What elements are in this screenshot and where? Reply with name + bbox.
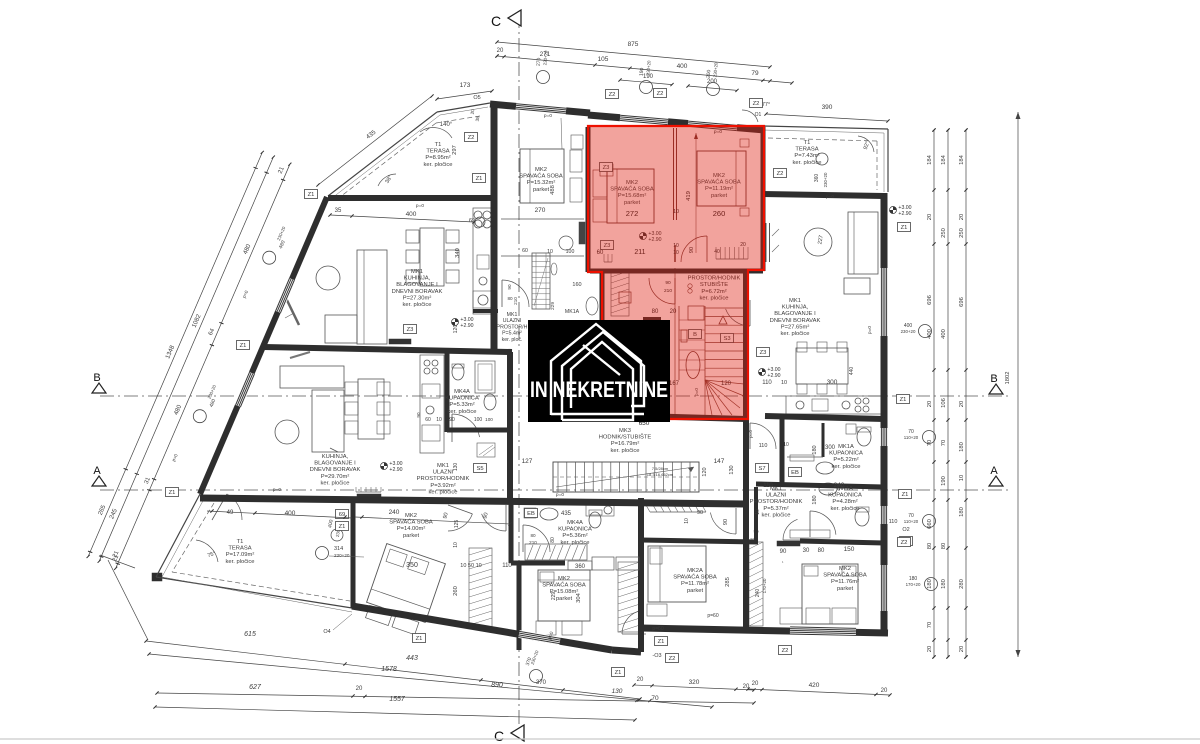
svg-text:420: 420 <box>809 682 820 689</box>
svg-text:615: 615 <box>244 631 256 638</box>
svg-text:ker. pločice: ker. pločice <box>793 160 822 166</box>
svg-text:Z2: Z2 <box>753 101 760 107</box>
svg-text:T1: T1 <box>804 140 811 146</box>
svg-text:80: 80 <box>818 548 825 554</box>
svg-text:P=15.32m²: P=15.32m² <box>527 180 556 186</box>
svg-text:P=27.65m²: P=27.65m² <box>781 324 810 330</box>
svg-text:P=11.78m²: P=11.78m² <box>681 581 709 587</box>
svg-text:EB: EB <box>527 511 535 517</box>
svg-text:320: 320 <box>689 679 700 686</box>
svg-text:110: 110 <box>502 563 512 569</box>
svg-text:20: 20 <box>881 688 888 694</box>
svg-text:p=0: p=0 <box>416 203 424 209</box>
svg-text:S5: S5 <box>476 466 483 472</box>
svg-text:Z1: Z1 <box>169 490 176 496</box>
svg-text:Z1: Z1 <box>339 524 346 530</box>
svg-text:Z2: Z2 <box>901 540 908 546</box>
svg-text:Z2: Z2 <box>609 92 616 98</box>
svg-text:MK1: MK1 <box>507 312 518 318</box>
svg-text:Z2: Z2 <box>777 171 784 177</box>
svg-text:435: 435 <box>561 511 572 517</box>
svg-text:ULAZNI: ULAZNI <box>503 318 521 324</box>
svg-text:350: 350 <box>406 562 418 569</box>
svg-text:696: 696 <box>927 295 933 305</box>
svg-text:18.3 16.662cm: 18.3 16.662cm <box>647 472 674 477</box>
svg-text:KUHINJA,: KUHINJA, <box>404 276 431 282</box>
svg-text:100: 100 <box>485 417 493 422</box>
svg-text:230+20: 230+20 <box>901 329 916 334</box>
svg-text:B: B <box>990 373 997 385</box>
svg-text:400: 400 <box>677 63 688 70</box>
svg-text:240: 240 <box>755 589 761 598</box>
svg-text:173: 173 <box>460 82 471 89</box>
svg-text:Z1: Z1 <box>901 225 908 231</box>
svg-text:90: 90 <box>416 412 421 418</box>
svg-text:60: 60 <box>425 417 431 423</box>
svg-text:p=60: p=60 <box>652 626 663 632</box>
svg-text:MK2: MK2 <box>405 513 417 519</box>
svg-text:230+20: 230+20 <box>334 553 350 558</box>
svg-text:O2: O2 <box>902 527 909 533</box>
svg-text:110: 110 <box>759 443 768 449</box>
svg-text:ULAZNI: ULAZNI <box>433 470 454 476</box>
svg-text:200: 200 <box>706 69 713 78</box>
svg-text:P=5.4m²: P=5.4m² <box>502 331 522 337</box>
svg-text:20: 20 <box>752 681 759 687</box>
svg-text:180: 180 <box>959 442 965 452</box>
svg-text:110+20: 110+20 <box>904 519 919 524</box>
svg-text:MK4A: MK4A <box>567 520 583 526</box>
svg-text:1802: 1802 <box>1005 372 1011 385</box>
svg-text:69: 69 <box>469 218 475 224</box>
svg-text:p=0: p=0 <box>867 326 873 334</box>
svg-text:10: 10 <box>959 475 965 481</box>
svg-text:230+20: 230+20 <box>823 172 828 187</box>
svg-text:p=0: p=0 <box>556 492 564 498</box>
svg-text:30: 30 <box>803 548 810 554</box>
svg-text:MK2: MK2 <box>839 566 851 572</box>
svg-text:400: 400 <box>927 329 933 339</box>
svg-text:10: 10 <box>755 509 761 515</box>
svg-text:184: 184 <box>927 154 933 164</box>
svg-text:Z3: Z3 <box>407 327 414 333</box>
svg-text:488: 488 <box>550 185 556 195</box>
svg-text:90: 90 <box>449 417 455 423</box>
svg-text:P=14.00m²: P=14.00m² <box>397 526 426 532</box>
svg-text:400: 400 <box>406 211 417 218</box>
svg-text:PROSTOR/HODNIK: PROSTOR/HODNIK <box>750 499 803 505</box>
svg-text:MK1: MK1 <box>770 486 782 492</box>
svg-text:70: 70 <box>651 695 659 702</box>
svg-text:127: 127 <box>522 458 533 465</box>
svg-text:10: 10 <box>684 518 690 524</box>
svg-text:210: 210 <box>513 297 518 305</box>
svg-text:10: 10 <box>547 249 553 255</box>
svg-text:7.5/28cm: 7.5/28cm <box>652 466 669 471</box>
svg-text:184: 184 <box>941 154 947 164</box>
svg-text:Z3: Z3 <box>760 350 767 356</box>
svg-text:184: 184 <box>959 154 965 164</box>
svg-text:Z1: Z1 <box>240 343 247 349</box>
svg-text:ker. pločice: ker. pločice <box>429 489 458 495</box>
svg-text:106: 106 <box>941 398 947 408</box>
svg-text:Z1: Z1 <box>308 192 315 198</box>
svg-text:MK2: MK2 <box>535 167 547 173</box>
svg-text:ker. pločice: ker. pločice <box>561 540 590 546</box>
svg-text:130: 130 <box>453 463 459 472</box>
svg-text:ker. pločice: ker. pločice <box>424 162 453 168</box>
svg-text:Z1: Z1 <box>658 639 665 645</box>
svg-text:20: 20 <box>927 646 933 652</box>
svg-text:S7: S7 <box>758 466 765 472</box>
svg-text:MK1A: MK1A <box>838 444 854 450</box>
svg-text:20: 20 <box>497 48 504 54</box>
svg-text:370: 370 <box>536 680 547 686</box>
svg-text:390: 390 <box>822 104 833 111</box>
svg-text:77°: 77° <box>762 102 770 108</box>
svg-text:270: 270 <box>536 57 543 66</box>
svg-text:SPAVAĆA SOBA: SPAVAĆA SOBA <box>389 519 433 526</box>
svg-text:90: 90 <box>697 510 703 516</box>
svg-text:240: 240 <box>389 509 400 516</box>
svg-text:MK1: MK1 <box>411 269 423 275</box>
svg-text:ker. pločice: ker. pločice <box>448 409 477 415</box>
svg-text:20: 20 <box>470 109 475 115</box>
svg-text:ker. ploč.: ker. ploč. <box>502 337 523 343</box>
svg-text:180: 180 <box>941 579 947 589</box>
svg-text:B: B <box>93 372 100 384</box>
svg-text:20: 20 <box>356 686 363 692</box>
svg-text:O5: O5 <box>473 95 480 101</box>
svg-text:79: 79 <box>751 70 759 77</box>
svg-text:A: A <box>93 465 101 477</box>
svg-text:C: C <box>494 728 504 744</box>
svg-text:SPAVAĆA SOBA: SPAVAĆA SOBA <box>542 582 586 589</box>
svg-text:250: 250 <box>959 228 965 238</box>
svg-text:KUHINJA,: KUHINJA, <box>322 454 349 460</box>
svg-text:147: 147 <box>714 458 725 465</box>
svg-text:130: 130 <box>729 465 735 474</box>
svg-text:150: 150 <box>844 546 855 553</box>
svg-text:80: 80 <box>550 537 556 543</box>
svg-text:KUPAONICA: KUPAONICA <box>558 527 592 533</box>
svg-text:285: 285 <box>725 577 731 587</box>
svg-text:120: 120 <box>702 467 708 476</box>
svg-text:MK2: MK2 <box>558 576 570 582</box>
svg-text:MK1: MK1 <box>437 463 449 469</box>
svg-text:Z1: Z1 <box>416 636 423 642</box>
svg-text:-O3: -O3 <box>652 653 661 659</box>
svg-text:P=3.92m²: P=3.92m² <box>430 483 455 489</box>
svg-text:P=5.33m²: P=5.33m² <box>449 402 474 408</box>
svg-text:10: 10 <box>436 417 442 423</box>
svg-text:100: 100 <box>474 417 483 423</box>
svg-text:20: 20 <box>927 401 933 407</box>
svg-text:Z2: Z2 <box>782 648 789 654</box>
svg-text:SPAVAĆA SOBA: SPAVAĆA SOBA <box>823 572 867 579</box>
svg-text:180: 180 <box>959 507 965 517</box>
svg-text:KUPAONICA: KUPAONICA <box>445 396 479 402</box>
svg-text:49: 49 <box>227 510 234 516</box>
svg-text:270: 270 <box>535 207 546 214</box>
svg-text:SPAVAĆA SOBA: SPAVAĆA SOBA <box>519 173 563 180</box>
svg-text:90: 90 <box>723 519 729 525</box>
svg-text:130: 130 <box>612 688 623 695</box>
svg-text:180: 180 <box>927 579 933 589</box>
svg-text:P=5.37m²: P=5.37m² <box>763 506 788 512</box>
svg-text:+2.90: +2.90 <box>898 211 911 217</box>
svg-text:20: 20 <box>927 214 933 220</box>
svg-text:100: 100 <box>566 249 575 255</box>
svg-text:20: 20 <box>959 646 965 652</box>
svg-text:P=7.43m²: P=7.43m² <box>794 153 819 159</box>
svg-text:p=0: p=0 <box>826 194 834 200</box>
svg-text:P=4.28m²: P=4.28m² <box>832 499 857 505</box>
svg-text:110: 110 <box>762 380 772 386</box>
svg-text:Z2: Z2 <box>669 656 676 662</box>
svg-text:170+20: 170+20 <box>762 578 767 593</box>
svg-text:KUHINJA,: KUHINJA, <box>782 305 809 311</box>
svg-text:10: 10 <box>781 380 787 386</box>
svg-text:C: C <box>491 13 501 29</box>
svg-text:HODNIK/STUBIŠTE: HODNIK/STUBIŠTE <box>599 434 652 441</box>
svg-text:TERASA: TERASA <box>426 149 449 155</box>
svg-text:KUPAONICA: KUPAONICA <box>828 493 862 499</box>
svg-text:60: 60 <box>522 248 528 254</box>
svg-text:314: 314 <box>334 546 343 552</box>
svg-text:180: 180 <box>812 445 818 454</box>
svg-text:BLAGOVANJE I: BLAGOVANJE I <box>774 311 816 317</box>
svg-text:125: 125 <box>454 520 460 529</box>
svg-text:1557: 1557 <box>389 696 406 703</box>
svg-text:400: 400 <box>941 329 947 339</box>
svg-text:Z1: Z1 <box>902 492 909 498</box>
svg-text:110+20: 110+20 <box>904 435 919 440</box>
svg-text:80: 80 <box>927 543 933 549</box>
svg-text:P=29.70m²: P=29.70m² <box>321 474 350 480</box>
svg-text:SPAVAĆA SOBA: SPAVAĆA SOBA <box>673 574 717 581</box>
svg-text:120: 120 <box>453 325 459 334</box>
svg-text:400: 400 <box>285 510 296 517</box>
svg-text:20: 20 <box>959 214 965 220</box>
svg-text:440: 440 <box>849 367 855 376</box>
svg-text:parket: parket <box>556 596 573 602</box>
svg-text:190: 190 <box>941 476 947 486</box>
svg-text:Z2: Z2 <box>657 91 664 97</box>
svg-text:297: 297 <box>452 145 458 155</box>
svg-text:P=27.30m²: P=27.30m² <box>403 295 432 301</box>
svg-text:80: 80 <box>941 543 947 549</box>
svg-text:O1: O1 <box>755 112 762 118</box>
svg-text:parket: parket <box>403 533 420 539</box>
svg-text:PROSTOR/H: PROSTOR/H <box>497 324 528 330</box>
svg-text:627: 627 <box>249 684 262 691</box>
svg-text:ker. pločice: ker. pločice <box>321 480 350 486</box>
svg-text:ker. pločice: ker. pločice <box>831 506 860 512</box>
svg-text:443: 443 <box>406 655 418 662</box>
svg-text:190: 190 <box>639 67 646 76</box>
svg-text:160: 160 <box>572 282 581 288</box>
svg-text:250: 250 <box>941 228 947 238</box>
svg-text:10: 10 <box>453 542 459 548</box>
svg-text:Z2: Z2 <box>468 135 475 141</box>
svg-text:parket: parket <box>687 588 704 594</box>
svg-text:EB: EB <box>791 470 799 476</box>
svg-text:p=0: p=0 <box>273 487 281 493</box>
svg-text:O4: O4 <box>323 629 330 635</box>
svg-text:180: 180 <box>812 495 818 504</box>
svg-text:300: 300 <box>827 379 838 386</box>
svg-text:DNEVNI BORAVAK: DNEVNI BORAVAK <box>392 289 443 295</box>
svg-text:P=5.36m²: P=5.36m² <box>562 533 587 539</box>
svg-text:340: 340 <box>455 248 461 258</box>
svg-text:ker. pločice: ker. pločice <box>403 302 432 308</box>
svg-text:ker. pločice: ker. pločice <box>611 448 640 454</box>
svg-text:TERASA: TERASA <box>795 147 818 153</box>
svg-text:110: 110 <box>889 519 898 525</box>
svg-text:10 50 10: 10 50 10 <box>460 563 481 569</box>
svg-text:280: 280 <box>959 579 965 589</box>
svg-text:90: 90 <box>780 549 787 555</box>
svg-text:90: 90 <box>507 284 512 290</box>
svg-text:T1: T1 <box>435 142 442 148</box>
svg-text:360: 360 <box>575 564 586 570</box>
svg-text:ker. pločice: ker. pločice <box>832 464 861 470</box>
svg-text:P=15.08m²: P=15.08m² <box>550 589 579 595</box>
svg-text:20: 20 <box>959 401 965 407</box>
svg-text:Z1: Z1 <box>615 670 622 676</box>
svg-text:696: 696 <box>959 297 965 307</box>
svg-text:P=11.76m²: P=11.76m² <box>831 579 859 585</box>
svg-text:BLAGOVANJE I: BLAGOVANJE I <box>396 282 438 288</box>
svg-text:140°: 140° <box>440 122 453 128</box>
svg-text:BLAGOVANJE I: BLAGOVANJE I <box>314 461 356 467</box>
svg-text:20: 20 <box>637 677 644 683</box>
svg-text:229: 229 <box>550 302 556 310</box>
svg-text:DNEVNI BORAVAK: DNEVNI BORAVAK <box>770 318 821 324</box>
svg-text:1578: 1578 <box>381 666 397 673</box>
svg-text:+2.90: +2.90 <box>389 467 402 473</box>
svg-text:KUPAONICA: KUPAONICA <box>829 451 863 457</box>
svg-text:ULAZNI: ULAZNI <box>766 493 787 499</box>
svg-text:T1: T1 <box>237 539 244 545</box>
svg-text:IN NEKRETNINE: IN NEKRETNINE <box>530 377 668 402</box>
svg-text:80: 80 <box>530 533 536 538</box>
svg-text:MK1: MK1 <box>789 298 801 304</box>
svg-text:170+20: 170+20 <box>906 582 921 587</box>
svg-text:P=8.95m²: P=8.95m² <box>425 155 450 161</box>
svg-text:PROSTOR/HODNIK: PROSTOR/HODNIK <box>417 476 470 482</box>
svg-text:360: 360 <box>814 174 820 183</box>
svg-text:890: 890 <box>491 682 503 689</box>
svg-text:TERASA: TERASA <box>228 546 251 552</box>
svg-text:875: 875 <box>628 41 639 48</box>
svg-text:DNEVNI BORAVAK: DNEVNI BORAVAK <box>310 467 361 473</box>
svg-text:A: A <box>990 465 998 477</box>
svg-text:P=16.79m²: P=16.79m² <box>611 441 640 447</box>
svg-text:P=17.09m²: P=17.09m² <box>226 552 255 558</box>
svg-text:ker. pločice: ker. pločice <box>762 512 791 518</box>
svg-text:MK3: MK3 <box>619 428 631 434</box>
svg-text:35: 35 <box>335 208 342 214</box>
svg-text:105: 105 <box>598 56 609 63</box>
svg-text:MK4A: MK4A <box>454 389 470 395</box>
svg-text:parket: parket <box>533 187 550 193</box>
svg-text:ker. pločice: ker. pločice <box>226 559 255 565</box>
svg-text:P=5.22m²: P=5.22m² <box>833 457 858 463</box>
svg-text:MK1A: MK1A <box>565 309 580 315</box>
svg-text:Z1: Z1 <box>900 397 907 403</box>
svg-text:+2.90: +2.90 <box>460 323 473 329</box>
svg-text:70: 70 <box>927 622 933 628</box>
svg-text:p=60: p=60 <box>707 613 718 619</box>
svg-text:38: 38 <box>475 116 480 122</box>
svg-text:70: 70 <box>941 440 947 446</box>
svg-text:MK2A: MK2A <box>687 568 703 574</box>
svg-text:210: 210 <box>529 540 537 545</box>
svg-text:p=0: p=0 <box>544 113 552 119</box>
svg-text:Z1: Z1 <box>476 176 483 182</box>
svg-text:260: 260 <box>453 586 459 596</box>
svg-text:parket: parket <box>837 586 854 592</box>
svg-text:ker. pločice: ker. pločice <box>781 331 810 337</box>
svg-text:+2.90: +2.90 <box>767 373 780 379</box>
svg-text:MK1A: MK1A <box>837 486 853 492</box>
